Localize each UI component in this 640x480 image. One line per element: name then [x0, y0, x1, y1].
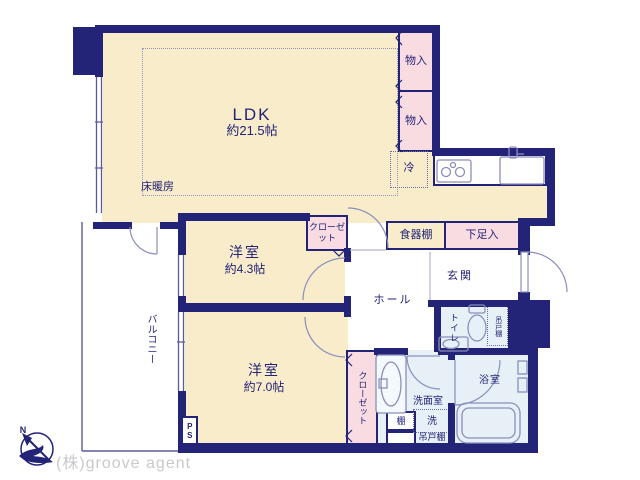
bedroom-small-label: 洋室 [195, 245, 295, 260]
balcony-outline [82, 222, 178, 451]
entrance-door-leaf [521, 252, 528, 292]
threshold-lines [350, 250, 430, 300]
stove-icon [437, 160, 471, 182]
bathroom-label: 浴室 [460, 374, 520, 387]
bedroom-large-label: 洋室 [214, 362, 314, 378]
bedroom-small-size-label: 約4.3帖 [195, 263, 295, 276]
door-balcony [130, 227, 157, 254]
ldk-label: LDK [172, 106, 332, 124]
closet-small-bedroom-label: クローゼット [308, 220, 346, 246]
storage-mid-label: 物入 [398, 115, 434, 128]
door-entrance [527, 252, 567, 292]
washroom-hanging-cupboard-label: 吊戸棚 [409, 431, 455, 443]
toilet-label: トイレ [446, 306, 461, 350]
entrance-label: 玄関 [432, 270, 488, 283]
ldk-size-label: 約21.5帖 [172, 124, 332, 138]
refrigerator-label: 冷 [390, 162, 428, 176]
shoe-cabinet-label: 下足入 [444, 230, 520, 242]
compass-north-label: N [16, 425, 30, 436]
door-bedroom-large [305, 317, 345, 357]
door-washroom [407, 356, 440, 389]
door-ldk-hall [348, 208, 388, 248]
hall-label: ホール [363, 294, 423, 307]
dish-shelf-label: 食器棚 [386, 230, 446, 242]
bedroom-large-size-label: 約7.0帖 [214, 381, 314, 394]
shelf-label: 棚 [386, 414, 416, 428]
kitchen-sink-icon [500, 147, 544, 184]
bathtub-icon [457, 403, 520, 443]
floor-heating-label: 床暖房 [141, 181, 191, 194]
washer-label: 洗 [413, 414, 451, 429]
door-bedroom-small [303, 258, 345, 300]
floor-plan: LDK 約21.5帖 床暖房 物入 物入 冷 食器棚 下足入 玄関 ホール トイ… [0, 0, 640, 480]
toilet-icon [468, 305, 486, 341]
toilet-hanging-cupboard-label: 吊戸棚 [489, 307, 506, 345]
storage-top-label: 物入 [398, 55, 434, 68]
window-bedroom-large [177, 312, 185, 391]
closet-large-bedroom-label: クローゼット [353, 360, 371, 436]
compass-icon [19, 433, 53, 465]
window-bedroom-small [177, 255, 185, 296]
agency-watermark: (株)groove agent [56, 449, 191, 473]
washroom-label: 洗面室 [402, 395, 454, 408]
balcony-label: バルコニー [142, 308, 158, 370]
window-ldk-left [95, 77, 103, 213]
pipe-space-label: PS [183, 419, 196, 443]
